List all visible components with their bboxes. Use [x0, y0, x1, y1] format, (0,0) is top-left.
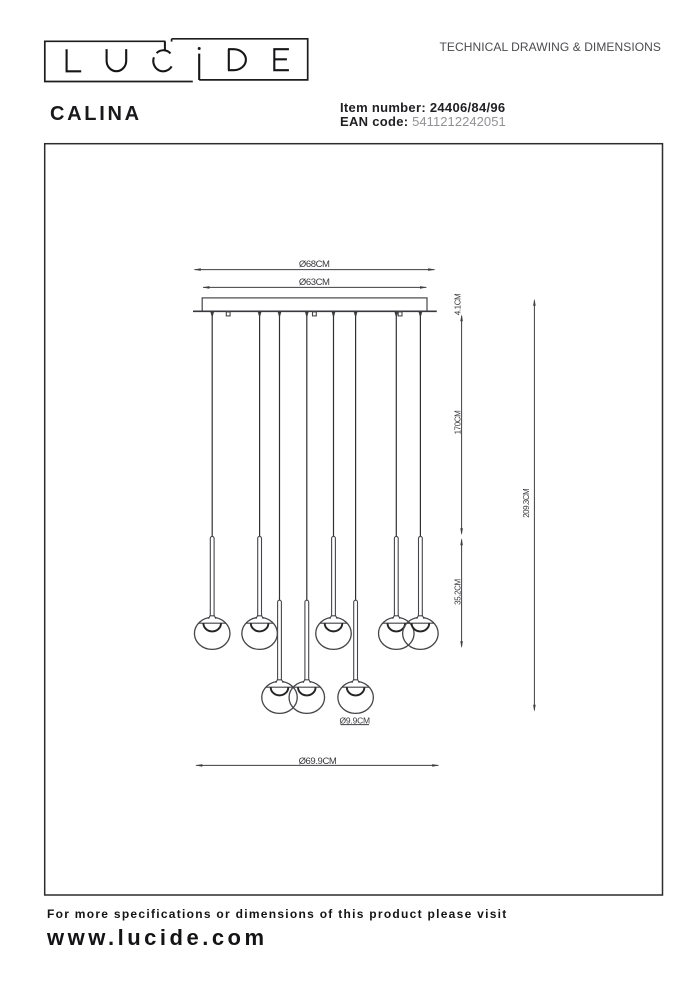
svg-text:Ø69.9CM: Ø69.9CM [299, 756, 337, 767]
svg-text:35.2CM: 35.2CM [453, 578, 462, 604]
svg-text:Ø68CM: Ø68CM [299, 259, 330, 270]
svg-text:4.1CM: 4.1CM [453, 293, 462, 315]
svg-text:170CM: 170CM [453, 410, 462, 435]
svg-text:Ø63CM: Ø63CM [299, 277, 330, 288]
svg-text:209.3CM: 209.3CM [522, 488, 531, 518]
